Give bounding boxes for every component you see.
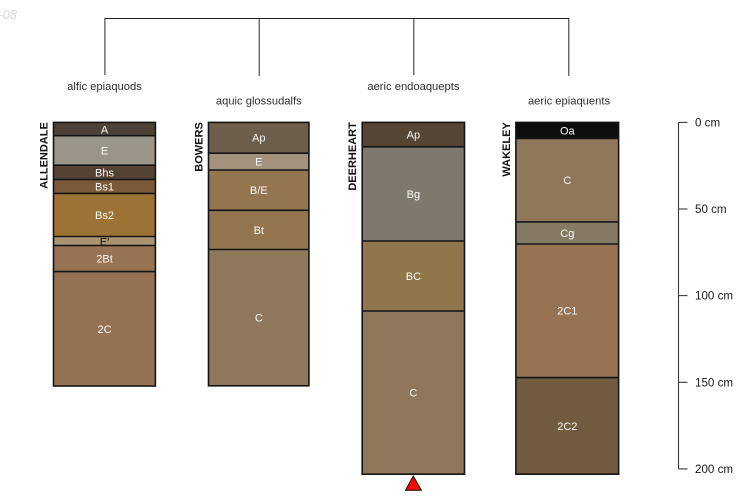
svg-text:ALLENDALE: ALLENDALE bbox=[39, 122, 51, 189]
svg-text:150 cm: 150 cm bbox=[695, 376, 733, 389]
svg-text:Bt: Bt bbox=[254, 225, 264, 237]
svg-text:Oa: Oa bbox=[560, 126, 576, 138]
svg-text:Ap: Ap bbox=[252, 133, 265, 145]
svg-text:C: C bbox=[563, 175, 571, 187]
svg-text:Bs1: Bs1 bbox=[95, 181, 114, 193]
svg-text:100 cm: 100 cm bbox=[695, 290, 733, 303]
svg-text:aeric epiaquents: aeric epiaquents bbox=[528, 95, 611, 107]
svg-text:alfic epiaquods: alfic epiaquods bbox=[67, 81, 142, 93]
svg-text:A: A bbox=[101, 124, 109, 136]
svg-text:0 cm: 0 cm bbox=[695, 117, 720, 130]
svg-text:50 cm: 50 cm bbox=[695, 203, 727, 216]
svg-text:2C1: 2C1 bbox=[557, 306, 577, 318]
svg-text:B/E: B/E bbox=[250, 185, 268, 197]
svg-text:Ap: Ap bbox=[407, 130, 420, 142]
svg-text:BC: BC bbox=[406, 271, 421, 283]
svg-text:Bhs: Bhs bbox=[95, 167, 114, 179]
svg-text:Bs2: Bs2 bbox=[95, 210, 114, 222]
svg-text:E: E bbox=[101, 145, 108, 157]
svg-text:E: E bbox=[255, 157, 262, 169]
svg-text:200 cm: 200 cm bbox=[695, 463, 733, 476]
svg-text:Bg: Bg bbox=[407, 189, 420, 201]
svg-text:DEERHEART: DEERHEART bbox=[347, 122, 359, 191]
svg-text:C: C bbox=[255, 313, 263, 325]
svg-text:aeric endoaquepts: aeric endoaquepts bbox=[367, 81, 459, 93]
svg-text:C: C bbox=[409, 388, 417, 400]
svg-text:2C2: 2C2 bbox=[557, 421, 577, 433]
svg-text:aquic glossudalfs: aquic glossudalfs bbox=[216, 95, 302, 107]
svg-text:E′: E′ bbox=[100, 237, 109, 249]
svg-text:2Bt: 2Bt bbox=[96, 254, 113, 266]
svg-text:2013-08: 2013-08 bbox=[0, 7, 18, 22]
svg-text:WAKELEY: WAKELEY bbox=[501, 122, 513, 177]
svg-text:BOWERS: BOWERS bbox=[194, 122, 206, 172]
svg-text:Cg: Cg bbox=[560, 228, 574, 240]
svg-text:2C: 2C bbox=[97, 324, 111, 336]
